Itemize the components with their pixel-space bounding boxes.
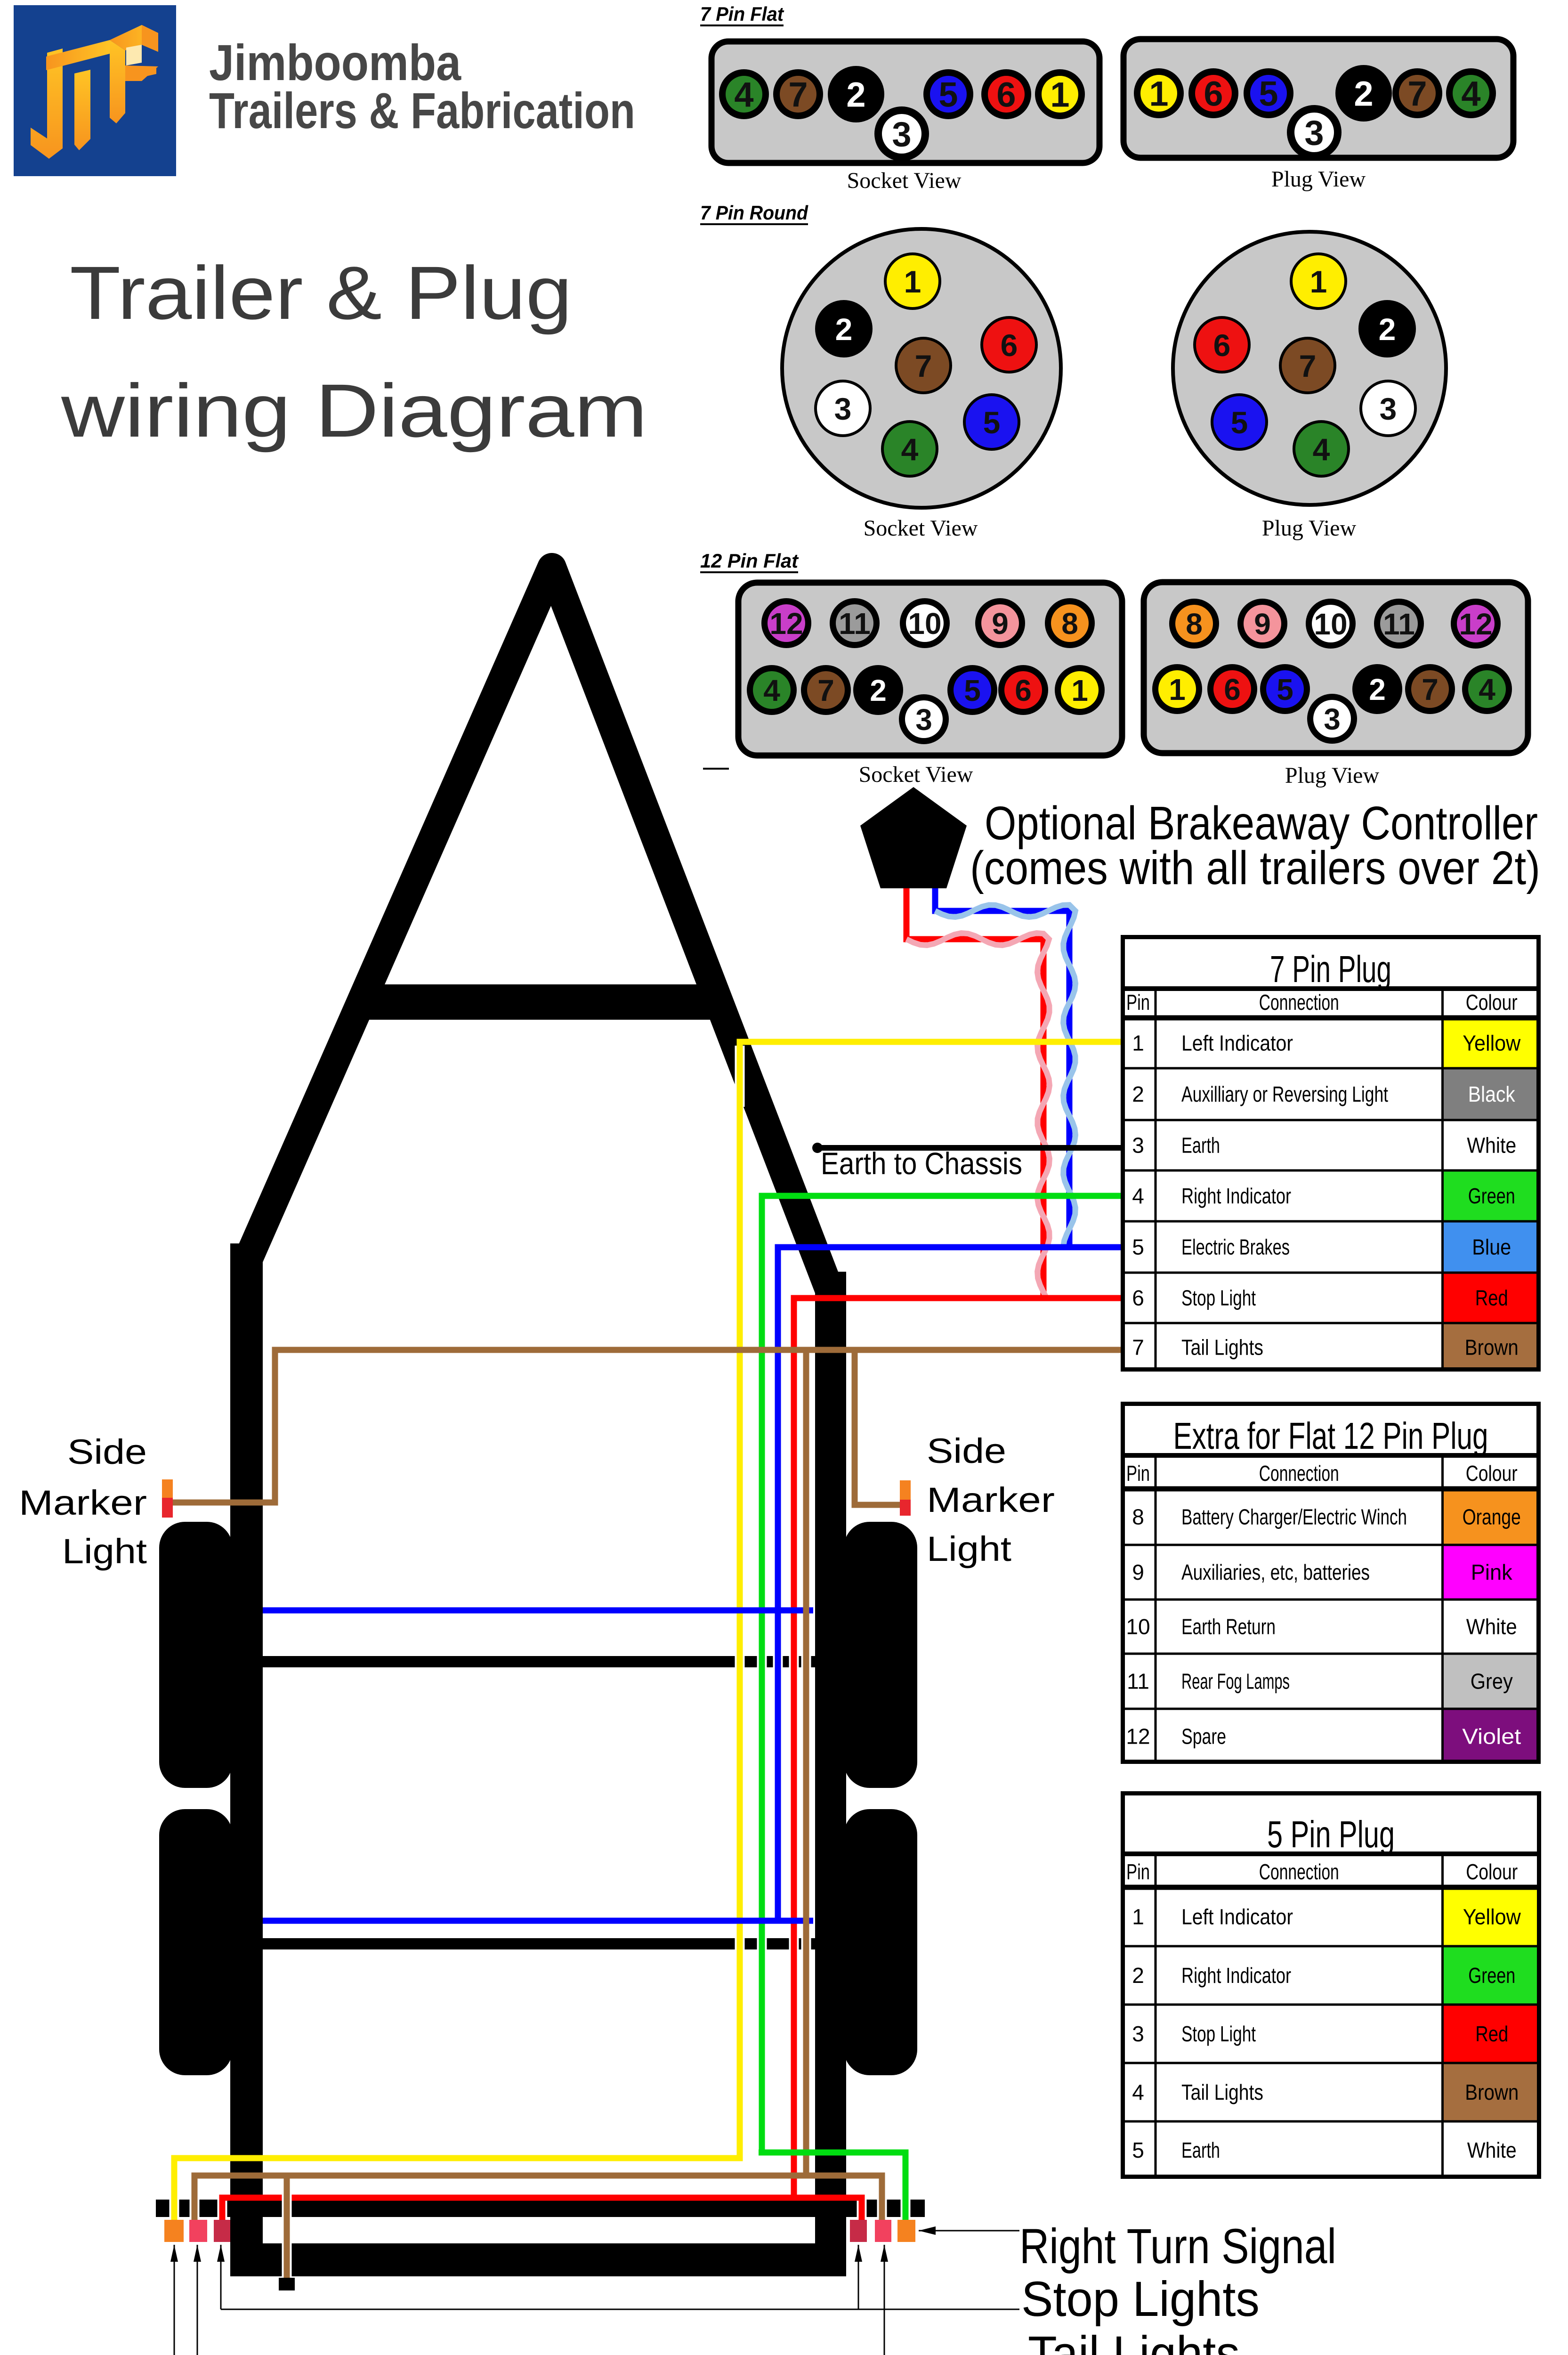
svg-text:10: 10: [1314, 607, 1347, 641]
svg-text:3: 3: [1324, 702, 1341, 736]
svg-text:2: 2: [1379, 312, 1396, 347]
svg-text:6: 6: [1015, 674, 1032, 707]
svg-text:12: 12: [769, 607, 803, 641]
svg-text:Yellow: Yellow: [1463, 1031, 1521, 1056]
svg-text:Tail Lights: Tail Lights: [1181, 2080, 1263, 2104]
svg-text:Green: Green: [1468, 1963, 1515, 1988]
svg-text:3: 3: [1132, 1133, 1144, 1158]
svg-text:Connection: Connection: [1259, 1860, 1339, 1884]
svg-text:Auxilliary or Reversing Light: Auxilliary or Reversing Light: [1181, 1082, 1388, 1106]
svg-text:5 Pin Plug: 5 Pin Plug: [1267, 1813, 1395, 1855]
svg-text:Red: Red: [1475, 1286, 1508, 1310]
svg-text:Trailers & Fabrication: Trailers & Fabrication: [209, 82, 635, 139]
svg-text:10: 10: [1126, 1615, 1150, 1639]
svg-text:Earth: Earth: [1181, 2138, 1220, 2162]
svg-text:Connection: Connection: [1259, 990, 1339, 1015]
svg-text:Socket View: Socket View: [859, 762, 973, 787]
svg-text:1: 1: [1149, 74, 1168, 114]
svg-text:Yellow: Yellow: [1463, 1905, 1521, 1929]
svg-text:Socket View: Socket View: [864, 516, 978, 541]
svg-text:6: 6: [1213, 328, 1231, 363]
svg-text:Orange: Orange: [1463, 1505, 1521, 1529]
svg-text:12: 12: [1126, 1724, 1150, 1749]
svg-text:11: 11: [1127, 1669, 1149, 1694]
svg-text:Rear Fog Lamps: Rear Fog Lamps: [1181, 1669, 1290, 1694]
svg-text:6: 6: [996, 75, 1016, 114]
svg-text:4: 4: [763, 674, 780, 707]
svg-text:Stop Lights: Stop Lights: [1021, 2272, 1260, 2327]
svg-text:Right Turn Signal: Right Turn Signal: [1019, 2219, 1336, 2274]
svg-text:11: 11: [839, 607, 871, 641]
svg-text:Colour: Colour: [1466, 990, 1518, 1015]
svg-text:8: 8: [1061, 607, 1078, 641]
svg-text:6: 6: [1132, 1286, 1144, 1310]
svg-text:2: 2: [1369, 673, 1386, 706]
svg-text:Left Indicator: Left Indicator: [1181, 1905, 1293, 1929]
svg-text:(comes with all trailers over: (comes with all trailers over 2t): [970, 842, 1540, 894]
svg-text:7 Pin Flat: 7 Pin Flat: [700, 3, 784, 25]
svg-text:5: 5: [1277, 673, 1293, 706]
svg-text:7: 7: [1132, 1335, 1144, 1360]
svg-text:Right Indicator: Right Indicator: [1181, 1184, 1291, 1208]
svg-text:Tail Lights: Tail Lights: [1181, 1335, 1263, 1360]
svg-text:Trailer & Plug: Trailer & Plug: [70, 251, 572, 335]
svg-text:Auxiliaries, etc, batteries: Auxiliaries, etc, batteries: [1181, 1560, 1370, 1584]
svg-text:5: 5: [1259, 74, 1278, 114]
svg-text:Colour: Colour: [1466, 1461, 1518, 1486]
svg-text:3: 3: [892, 115, 911, 154]
svg-text:2: 2: [846, 75, 865, 114]
svg-text:Brown: Brown: [1465, 2080, 1519, 2104]
svg-text:5: 5: [964, 674, 981, 707]
svg-text:Battery Charger/Electric Winch: Battery Charger/Electric Winch: [1181, 1505, 1407, 1529]
svg-text:4: 4: [734, 75, 753, 114]
svg-text:White: White: [1467, 2138, 1517, 2162]
svg-text:6: 6: [1001, 328, 1018, 363]
svg-text:Socket View: Socket View: [847, 168, 962, 193]
svg-text:5: 5: [1231, 405, 1248, 440]
svg-text:Connection: Connection: [1259, 1461, 1339, 1486]
svg-text:Plug View: Plug View: [1262, 516, 1357, 541]
svg-text:Grey: Grey: [1471, 1669, 1513, 1694]
svg-text:2: 2: [835, 312, 853, 347]
svg-text:Stop Light: Stop Light: [1181, 1286, 1256, 1310]
svg-text:Extra for Flat 12 Pin Plug: Extra for Flat 12 Pin Plug: [1173, 1415, 1488, 1457]
svg-text:Pin: Pin: [1126, 1860, 1150, 1884]
svg-text:Light: Light: [927, 1529, 1011, 1568]
svg-text:9: 9: [1254, 607, 1271, 641]
svg-text:10: 10: [908, 607, 941, 641]
svg-text:6: 6: [1204, 74, 1223, 114]
svg-text:7: 7: [817, 674, 834, 707]
svg-text:8: 8: [1132, 1505, 1144, 1529]
svg-text:Pin: Pin: [1126, 990, 1150, 1015]
svg-text:9: 9: [1132, 1560, 1144, 1584]
svg-text:7: 7: [1422, 673, 1439, 706]
svg-text:Light: Light: [62, 1532, 147, 1571]
svg-text:9: 9: [992, 607, 1009, 641]
svg-text:6: 6: [1224, 673, 1241, 706]
svg-text:1: 1: [1071, 674, 1088, 707]
svg-text:Stop Light: Stop Light: [1181, 2022, 1256, 2046]
svg-text:1: 1: [1050, 75, 1069, 114]
svg-text:12 Pin Flat: 12 Pin Flat: [700, 550, 799, 572]
svg-text:1: 1: [1310, 264, 1327, 299]
svg-text:Blue: Blue: [1472, 1235, 1511, 1259]
svg-text:Side: Side: [927, 1431, 1006, 1470]
svg-text:3: 3: [1132, 2022, 1144, 2046]
svg-text:Black: Black: [1468, 1082, 1516, 1106]
svg-text:Side: Side: [67, 1432, 147, 1471]
svg-text:5: 5: [1132, 1235, 1144, 1259]
svg-text:2: 2: [1354, 74, 1373, 114]
svg-text:5: 5: [1132, 2138, 1144, 2162]
svg-text:3: 3: [1304, 114, 1324, 153]
svg-text:12: 12: [1459, 607, 1492, 641]
svg-text:3: 3: [834, 391, 852, 426]
svg-text:4: 4: [1132, 2080, 1144, 2104]
svg-text:White: White: [1467, 1133, 1516, 1158]
svg-text:7: 7: [1299, 349, 1317, 383]
svg-text:Earth: Earth: [1181, 1133, 1220, 1158]
svg-text:3: 3: [1380, 391, 1397, 426]
svg-text:2: 2: [1132, 1963, 1144, 1988]
svg-text:4: 4: [901, 432, 919, 467]
svg-text:7: 7: [1407, 74, 1427, 114]
svg-text:Brown: Brown: [1465, 1335, 1519, 1360]
svg-text:Tail Lights: Tail Lights: [1028, 2326, 1240, 2355]
svg-text:4: 4: [1479, 673, 1495, 706]
svg-text:Right Indicator: Right Indicator: [1181, 1963, 1291, 1988]
svg-text:11: 11: [1383, 607, 1415, 641]
svg-text:wiring Diagram: wiring Diagram: [61, 368, 647, 453]
svg-text:Earth Return: Earth Return: [1181, 1615, 1276, 1639]
svg-text:7 Pin Round: 7 Pin Round: [700, 202, 808, 224]
svg-text:2: 2: [870, 674, 887, 707]
svg-text:Colour: Colour: [1466, 1860, 1518, 1884]
svg-text:Electric Brakes: Electric Brakes: [1181, 1235, 1290, 1259]
svg-text:Pin: Pin: [1126, 1461, 1150, 1486]
svg-text:7: 7: [915, 349, 932, 383]
svg-text:White: White: [1466, 1615, 1517, 1639]
svg-text:5: 5: [983, 405, 1001, 440]
svg-text:1: 1: [904, 264, 921, 299]
svg-text:Pink: Pink: [1471, 1560, 1513, 1584]
svg-text:4: 4: [1132, 1184, 1144, 1208]
svg-text:Earth to Chassis: Earth to Chassis: [821, 1146, 1022, 1181]
svg-text:Spare: Spare: [1181, 1724, 1226, 1749]
svg-text:Plug View: Plug View: [1285, 763, 1380, 788]
svg-text:Green: Green: [1468, 1184, 1515, 1208]
svg-text:2: 2: [1132, 1082, 1144, 1106]
svg-text:8: 8: [1186, 607, 1203, 641]
svg-text:Red: Red: [1475, 2022, 1508, 2046]
svg-text:1: 1: [1169, 673, 1186, 706]
svg-text:Violet: Violet: [1462, 1724, 1521, 1749]
svg-text:Marker: Marker: [927, 1480, 1055, 1519]
svg-text:4: 4: [1313, 432, 1330, 467]
svg-text:7: 7: [788, 75, 808, 114]
svg-text:Left Indicator: Left Indicator: [1181, 1031, 1293, 1056]
svg-text:3: 3: [915, 703, 932, 737]
svg-text:1: 1: [1132, 1905, 1144, 1929]
svg-text:Marker: Marker: [19, 1483, 147, 1522]
svg-text:4: 4: [1461, 74, 1480, 114]
svg-text:Plug View: Plug View: [1271, 167, 1366, 192]
svg-text:1: 1: [1132, 1031, 1144, 1056]
svg-text:7 Pin Plug: 7 Pin Plug: [1270, 948, 1391, 990]
svg-text:5: 5: [938, 75, 958, 114]
